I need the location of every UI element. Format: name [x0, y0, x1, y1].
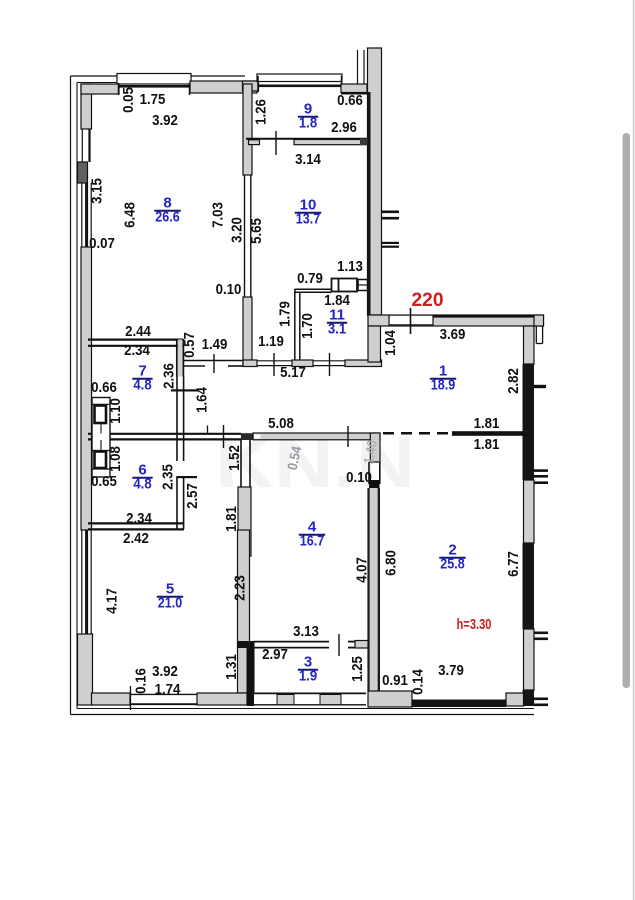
svg-text:6.80: 6.80: [382, 550, 399, 576]
svg-text:1.08: 1.08: [107, 446, 124, 472]
svg-text:6.48: 6.48: [121, 202, 138, 228]
svg-text:6.77: 6.77: [505, 551, 522, 577]
svg-text:2.44: 2.44: [125, 323, 151, 340]
svg-text:3.69: 3.69: [440, 326, 466, 343]
svg-text:1.25: 1.25: [349, 656, 366, 682]
svg-text:1.64: 1.64: [193, 387, 210, 413]
svg-text:2.97: 2.97: [262, 646, 288, 663]
svg-text:1.19: 1.19: [258, 333, 284, 350]
svg-text:13.7: 13.7: [296, 211, 320, 228]
svg-text:1.70: 1.70: [299, 313, 316, 339]
svg-text:1.81: 1.81: [474, 415, 500, 432]
svg-text:2.23: 2.23: [231, 575, 248, 601]
svg-text:0.14: 0.14: [409, 669, 426, 695]
svg-text:2.57: 2.57: [184, 483, 201, 509]
svg-text:0.05: 0.05: [120, 87, 137, 113]
svg-text:0.10: 0.10: [216, 281, 242, 298]
svg-text:18.9: 18.9: [431, 377, 455, 394]
svg-text:5.08: 5.08: [268, 415, 294, 432]
svg-text:25.8: 25.8: [440, 556, 464, 573]
svg-text:4.8: 4.8: [133, 476, 151, 493]
svg-text:2.82: 2.82: [505, 368, 522, 394]
svg-text:3.13: 3.13: [293, 623, 319, 640]
svg-text:1.04: 1.04: [382, 330, 399, 356]
svg-text:16.7: 16.7: [300, 533, 324, 550]
svg-text:2.34: 2.34: [124, 342, 150, 359]
svg-text:1.10: 1.10: [107, 398, 124, 424]
svg-text:4.07: 4.07: [353, 557, 370, 583]
svg-text:0.65: 0.65: [91, 473, 117, 490]
svg-text:0.66: 0.66: [91, 379, 117, 396]
svg-text:1.49: 1.49: [202, 336, 228, 353]
svg-text:2.96: 2.96: [331, 119, 357, 136]
svg-text:3.1: 3.1: [328, 321, 346, 338]
svg-text:1.9: 1.9: [299, 668, 317, 685]
svg-text:1.52: 1.52: [226, 445, 243, 471]
svg-text:21.0: 21.0: [158, 595, 182, 612]
svg-text:0.10: 0.10: [346, 469, 372, 486]
svg-text:3.15: 3.15: [88, 178, 105, 204]
svg-text:1.74: 1.74: [155, 681, 181, 698]
svg-text:1.81: 1.81: [474, 436, 500, 453]
svg-text:0.16: 0.16: [132, 668, 149, 694]
svg-text:26.6: 26.6: [155, 209, 179, 226]
svg-text:0.79: 0.79: [297, 270, 323, 287]
svg-text:0.91: 0.91: [382, 672, 408, 689]
svg-text:1.31: 1.31: [223, 654, 240, 680]
svg-text:0.66: 0.66: [337, 92, 363, 109]
svg-text:1.75: 1.75: [140, 91, 166, 108]
svg-text:2.36: 2.36: [160, 363, 177, 389]
svg-text:1.79: 1.79: [276, 301, 293, 327]
svg-text:3.20: 3.20: [228, 217, 245, 243]
svg-text:7.03: 7.03: [209, 202, 226, 228]
svg-text:4.8: 4.8: [133, 377, 151, 394]
svg-text:1.8: 1.8: [299, 115, 317, 132]
svg-text:1.81: 1.81: [223, 506, 240, 532]
svg-text:3.79: 3.79: [438, 662, 464, 679]
svg-text:1.26: 1.26: [252, 99, 269, 125]
svg-text:3.14: 3.14: [295, 151, 321, 168]
svg-text:h=3.30: h=3.30: [457, 617, 492, 633]
svg-text:2.35: 2.35: [159, 464, 176, 490]
svg-text:1.13: 1.13: [337, 258, 363, 275]
svg-text:2.34: 2.34: [126, 510, 152, 527]
svg-text:220: 220: [412, 290, 444, 311]
svg-text:3.92: 3.92: [152, 663, 178, 680]
svg-text:0.57: 0.57: [181, 332, 198, 358]
svg-text:0.07: 0.07: [89, 235, 115, 252]
svg-text:5.17: 5.17: [280, 364, 306, 381]
svg-text:2.42: 2.42: [123, 530, 149, 547]
svg-text:4.17: 4.17: [103, 588, 120, 614]
svg-text:3.92: 3.92: [152, 112, 178, 129]
svg-text:5.65: 5.65: [248, 218, 265, 244]
